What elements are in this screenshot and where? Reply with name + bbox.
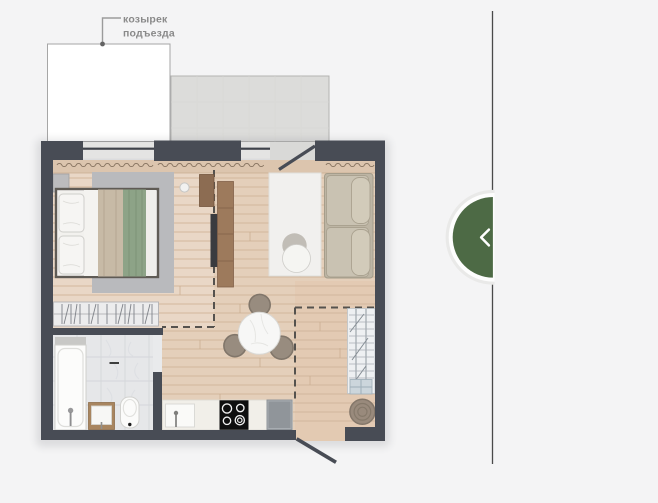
svg-text:подъезда: подъезда — [123, 28, 175, 40]
svg-text:козырек: козырек — [123, 14, 168, 26]
